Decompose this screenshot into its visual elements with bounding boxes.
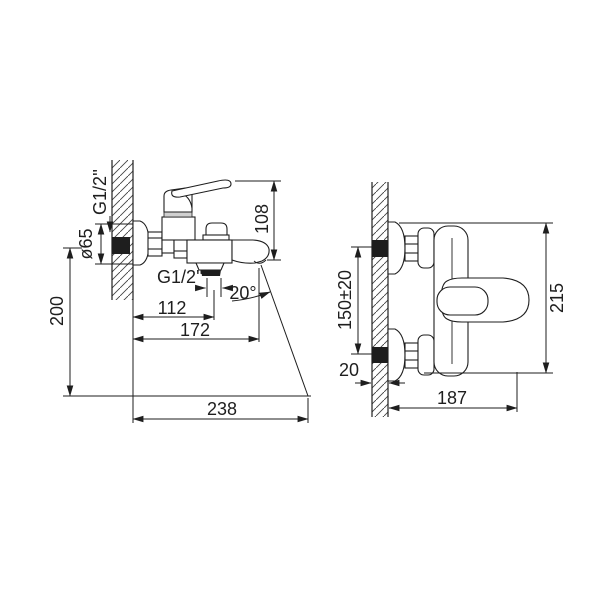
side-view (351, 182, 553, 417)
dim-shower-outlet-offset-label: 112 (158, 299, 187, 317)
side-faucet (388, 222, 529, 381)
side-inlet-pipe-bottom (372, 347, 388, 363)
front-escutcheon (133, 221, 149, 265)
front-cartridge (162, 217, 195, 240)
dim-overall-depth-label: 187 (437, 389, 467, 407)
dim-escutcheon-diameter-label: ø65 (77, 228, 95, 259)
dim-stream-angle-label: 20° (229, 284, 256, 302)
technical-drawing-page: G1/2'' ø65 200 108 G1/2'' 112 172 20° 23… (0, 0, 600, 600)
dim-stream-reach-label: 238 (207, 400, 237, 418)
water-stream-line (261, 265, 308, 396)
dim-spout-reach-label: 172 (180, 321, 210, 339)
front-faucet (133, 180, 269, 276)
dim-inlet-thread-label: G1/2'' (91, 169, 109, 215)
side-lever-grip (437, 287, 488, 315)
dim-body-height-label: 108 (253, 204, 271, 234)
dim-overall-height-label: 215 (548, 283, 566, 313)
drawing-linework (0, 0, 600, 600)
dim-shower-outlet-thread-label: G1/2'' (157, 268, 203, 286)
side-inlet-pipe-top (372, 240, 388, 257)
dim-hole-spacing-label: 150±20 (336, 270, 354, 330)
front-spout (232, 240, 269, 263)
dim-wall-clearance-label: 20 (339, 361, 359, 379)
front-body (187, 240, 232, 263)
side-escutcheon-bottom (388, 329, 405, 381)
side-escutcheon-top (388, 222, 405, 274)
front-outlet-thread (201, 270, 221, 276)
dim-mounting-height-label: 200 (48, 296, 66, 326)
front-inlet-pipe (112, 237, 130, 254)
side-wall (372, 182, 388, 417)
front-wall (112, 160, 133, 300)
